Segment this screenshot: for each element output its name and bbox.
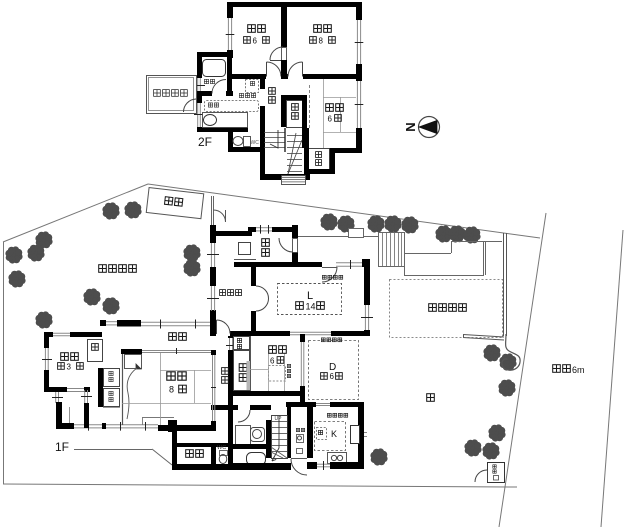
svg-text:8: 8 (319, 37, 324, 46)
svg-text:L: L (307, 290, 313, 302)
svg-text:1F: 1F (55, 440, 69, 454)
svg-text:WC: WC (251, 140, 260, 146)
svg-text:2F: 2F (198, 135, 212, 149)
svg-text:8: 8 (169, 385, 174, 395)
svg-text:6: 6 (330, 372, 335, 381)
svg-text:14: 14 (306, 302, 316, 312)
svg-text:6: 6 (328, 115, 333, 124)
svg-text:UP: UP (275, 416, 283, 422)
svg-text:N: N (403, 122, 418, 131)
svg-text:6m: 6m (572, 365, 585, 375)
svg-text:K: K (331, 429, 337, 439)
svg-text:6: 6 (270, 357, 275, 366)
svg-text:3: 3 (67, 363, 72, 372)
svg-text:6: 6 (253, 37, 258, 46)
